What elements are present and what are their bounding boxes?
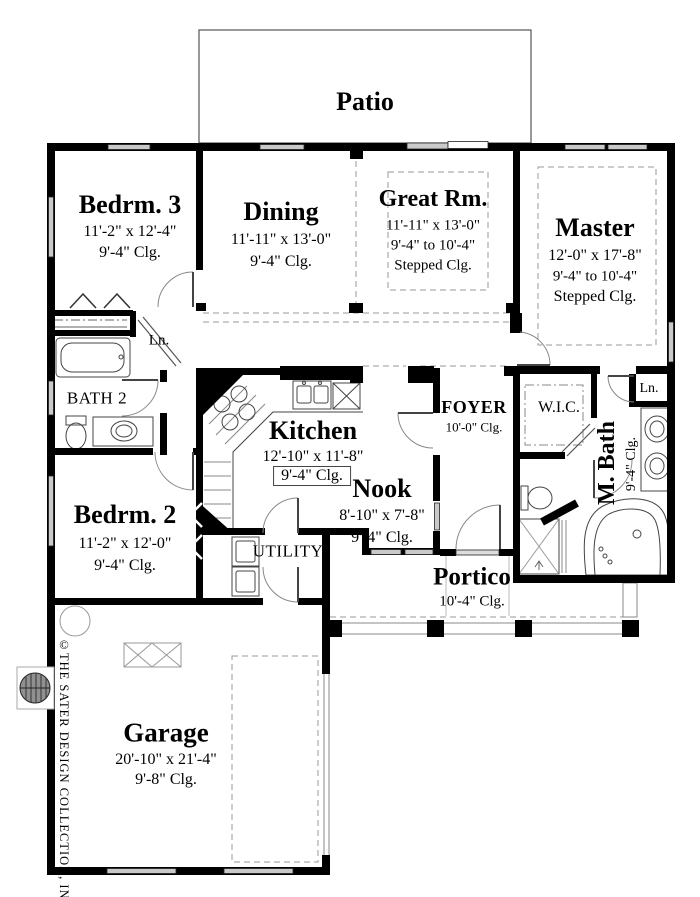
room-dims-nook: 8'-10" x 7'-8": [339, 508, 424, 524]
bath2-fixtures: [54, 320, 153, 449]
dishwasher-icon: [333, 383, 360, 409]
room-label-bath2: BATH 2: [67, 390, 127, 407]
room-ceiling-garage: 9'-8" Clg.: [135, 772, 197, 788]
shower-icon: [519, 519, 566, 574]
toilet-icon: [66, 416, 86, 449]
room-ceiling-kitchen: 9'-4" Clg.: [273, 466, 351, 486]
attic-access-icon: [124, 643, 181, 667]
room-label-wic: W.I.C.: [538, 400, 580, 416]
sater-design-logo: [17, 667, 54, 709]
mbath-toilet-icon: [521, 486, 552, 510]
room-ceiling-foyer: 10'-0" Clg.: [446, 421, 503, 434]
room-label-utility: UTILITY: [253, 543, 324, 560]
room-ceiling-range-great-rm: 9'-4" to 10'-4": [391, 239, 475, 254]
room-label-master: Master: [555, 215, 634, 241]
room-ceiling-portico: 10'-4" Clg.: [439, 595, 505, 610]
portico-column: [427, 620, 444, 637]
room-ceiling-type-master: Stepped Clg.: [554, 289, 637, 305]
portico-column: [515, 620, 532, 637]
room-label-great-rm: Great Rm.: [379, 187, 488, 211]
room-label-bedrm2: Bedrm. 2: [74, 502, 177, 528]
room-ceiling-dining: 9'-4" Clg.: [250, 254, 312, 270]
bath2-vanity-icon: [93, 417, 153, 446]
room-dims-master: 12'-0" x 17'-8": [548, 248, 641, 264]
room-label-portico: Portico: [433, 565, 511, 590]
garage-details: [124, 643, 329, 857]
closet-rod-icons: [70, 294, 130, 308]
room-dims-kitchen: 12'-10" x 11'-8": [263, 449, 364, 465]
room-dims-bedrm3: 11'-2" x 12'-4": [84, 224, 177, 240]
floor-plan: Patio Bedrm. 3 11'-2" x 12'-4" 9'-4" Clg…: [0, 0, 700, 897]
room-label-garage: Garage: [123, 720, 208, 747]
room-ceiling-bedrm2: 9'-4" Clg.: [94, 558, 156, 574]
kitchen-sink-icon: [293, 381, 331, 409]
room-dims-garage: 20'-10" x 21'-4": [115, 752, 216, 768]
portico-column: [622, 620, 639, 637]
room-label-nook: Nook: [352, 476, 411, 502]
entry-door: [456, 550, 499, 555]
corner-tub-icon: [584, 499, 669, 575]
room-label-master-bath: M. Bath: [595, 421, 619, 505]
portico-column-shaft: [623, 583, 637, 617]
room-label-kitchen: Kitchen: [269, 418, 357, 444]
garage-door: [107, 869, 176, 874]
column-base-circle: [60, 606, 90, 636]
copyright-text: ©THE SATER DESIGN COLLECTION, INC.: [56, 638, 71, 897]
room-ceiling-type-great-rm: Stepped Clg.: [394, 259, 472, 274]
room-dims-great-rm: 11'-11" x 13'-0": [386, 219, 480, 234]
portico-column: [325, 620, 342, 637]
room-label-bedrm3: Bedrm. 3: [79, 192, 182, 218]
room-label-foyer: FOYER: [441, 398, 507, 416]
room-label-linen-master: Ln.: [639, 382, 658, 396]
room-ceiling-master-bath: 9'-4" Clg.: [625, 437, 639, 491]
room-ceiling-range-master: 9'-4" to 10'-4": [553, 270, 637, 285]
room-dims-dining: 11'-11" x 13'-0": [231, 232, 331, 248]
room-dims-bedrm2: 11'-2" x 12'-0": [79, 536, 172, 552]
bathtub-icon: [56, 338, 130, 377]
room-label-patio: Patio: [336, 89, 394, 115]
room-ceiling-bedrm3: 9'-4" Clg.: [99, 245, 161, 261]
garage-door: [224, 869, 293, 874]
room-label-dining: Dining: [243, 199, 318, 225]
room-ceiling-nook: 9'-4" Clg.: [351, 530, 413, 546]
room-label-linen-hall: Ln.: [149, 334, 169, 349]
